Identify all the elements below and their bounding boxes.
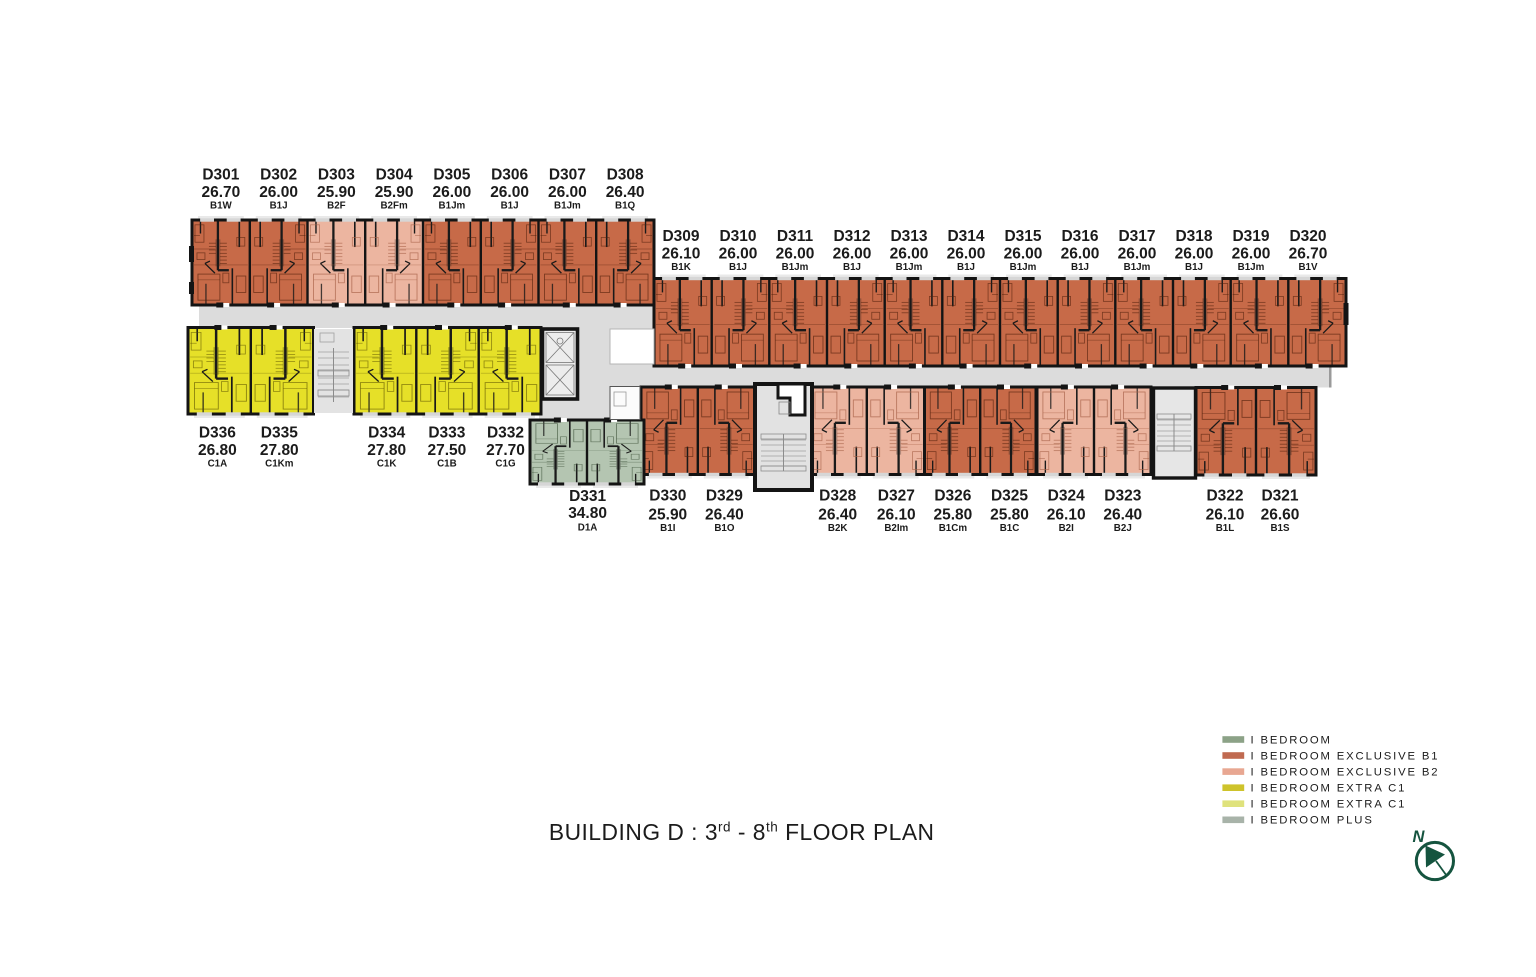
- svg-text:B1Q: B1Q: [615, 201, 636, 212]
- svg-text:D331: D331: [569, 488, 606, 505]
- svg-text:B2I: B2I: [1059, 523, 1075, 534]
- svg-text:D324: D324: [1048, 488, 1085, 505]
- svg-text:D310: D310: [719, 228, 756, 245]
- svg-text:25.90: 25.90: [648, 507, 687, 524]
- svg-text:26.80: 26.80: [198, 442, 237, 459]
- svg-text:26.40: 26.40: [818, 507, 857, 524]
- svg-text:27.80: 27.80: [367, 442, 406, 459]
- svg-text:D322: D322: [1206, 488, 1243, 505]
- svg-text:D317: D317: [1118, 228, 1155, 245]
- svg-text:26.00: 26.00: [719, 246, 758, 263]
- svg-text:B1Jm: B1Jm: [896, 262, 923, 273]
- svg-text:C1B: C1B: [437, 459, 457, 470]
- svg-text:N: N: [1413, 828, 1426, 846]
- svg-text:26.00: 26.00: [947, 246, 986, 263]
- svg-text:26.10: 26.10: [1047, 507, 1086, 524]
- svg-text:B1Jm: B1Jm: [782, 262, 809, 273]
- svg-text:D333: D333: [428, 425, 465, 442]
- svg-text:C1Km: C1Km: [265, 459, 294, 470]
- svg-text:C1A: C1A: [208, 459, 228, 470]
- svg-text:26.60: 26.60: [1261, 507, 1300, 524]
- svg-text:I BEDROOM PLUS: I BEDROOM PLUS: [1251, 815, 1374, 827]
- svg-text:D329: D329: [706, 488, 743, 505]
- svg-text:25.80: 25.80: [934, 507, 973, 524]
- svg-text:B1I: B1I: [660, 523, 676, 534]
- svg-text:I BEDROOM EXCLUSIVE B2: I BEDROOM EXCLUSIVE B2: [1251, 767, 1440, 779]
- svg-text:D314: D314: [947, 228, 984, 245]
- svg-text:B2F: B2F: [327, 201, 346, 212]
- svg-text:B1L: B1L: [1216, 523, 1235, 534]
- svg-text:B1W: B1W: [210, 201, 233, 212]
- svg-text:I BEDROOM: I BEDROOM: [1251, 734, 1332, 746]
- svg-text:D307: D307: [549, 167, 586, 184]
- svg-text:D321: D321: [1261, 488, 1298, 505]
- svg-text:26.00: 26.00: [1061, 246, 1100, 263]
- svg-text:B1J: B1J: [270, 201, 288, 212]
- svg-text:D332: D332: [487, 425, 524, 442]
- svg-text:26.00: 26.00: [1175, 246, 1214, 263]
- svg-text:B1C: B1C: [1000, 523, 1020, 534]
- svg-text:D325: D325: [991, 488, 1028, 505]
- svg-text:26.70: 26.70: [202, 184, 241, 201]
- svg-text:B1V: B1V: [1298, 262, 1318, 273]
- svg-text:I BEDROOM EXCLUSIVE B1: I BEDROOM EXCLUSIVE B1: [1251, 750, 1440, 762]
- svg-text:D328: D328: [819, 488, 856, 505]
- svg-text:D318: D318: [1175, 228, 1212, 245]
- svg-text:B2Im: B2Im: [884, 523, 908, 534]
- svg-text:26.70: 26.70: [1289, 246, 1328, 263]
- svg-text:B1J: B1J: [957, 262, 975, 273]
- svg-text:26.00: 26.00: [1004, 246, 1043, 263]
- svg-text:C1G: C1G: [495, 459, 516, 470]
- svg-text:26.10: 26.10: [877, 507, 916, 524]
- svg-text:26.10: 26.10: [662, 246, 701, 263]
- svg-text:D301: D301: [202, 167, 239, 184]
- svg-text:D316: D316: [1061, 228, 1098, 245]
- svg-text:26.00: 26.00: [776, 246, 815, 263]
- svg-text:D319: D319: [1232, 228, 1269, 245]
- svg-text:D302: D302: [260, 167, 297, 184]
- svg-text:D306: D306: [491, 167, 528, 184]
- svg-text:26.00: 26.00: [890, 246, 929, 263]
- svg-text:BUILDING D : 3rd - 8th FLOOR P: BUILDING D : 3rd - 8th FLOOR PLAN: [549, 819, 935, 845]
- svg-text:D303: D303: [318, 167, 355, 184]
- svg-text:D327: D327: [878, 488, 915, 505]
- svg-text:25.90: 25.90: [317, 184, 356, 201]
- svg-text:26.40: 26.40: [1103, 507, 1142, 524]
- svg-text:27.80: 27.80: [260, 442, 299, 459]
- svg-text:B2J: B2J: [1114, 523, 1132, 534]
- svg-text:D305: D305: [433, 167, 470, 184]
- svg-text:D334: D334: [368, 425, 405, 442]
- svg-text:26.00: 26.00: [1118, 246, 1157, 263]
- svg-text:B1Jm: B1Jm: [1124, 262, 1151, 273]
- svg-text:D308: D308: [607, 167, 644, 184]
- svg-text:25.90: 25.90: [375, 184, 414, 201]
- svg-text:D320: D320: [1289, 228, 1326, 245]
- svg-text:27.70: 27.70: [486, 442, 525, 459]
- svg-text:B1Cm: B1Cm: [939, 523, 968, 534]
- svg-text:26.00: 26.00: [433, 184, 472, 201]
- svg-text:B1Jm: B1Jm: [554, 201, 581, 212]
- svg-text:26.10: 26.10: [1206, 507, 1245, 524]
- svg-text:B2Fm: B2Fm: [380, 201, 408, 212]
- svg-text:B1Jm: B1Jm: [439, 201, 466, 212]
- svg-text:B2K: B2K: [828, 523, 848, 534]
- svg-text:D312: D312: [833, 228, 870, 245]
- svg-text:27.50: 27.50: [428, 442, 467, 459]
- svg-text:I BEDROOM EXTRA C1: I BEDROOM EXTRA C1: [1251, 799, 1407, 811]
- svg-text:D313: D313: [890, 228, 927, 245]
- svg-text:D330: D330: [649, 488, 686, 505]
- svg-text:D335: D335: [261, 425, 298, 442]
- svg-text:B1O: B1O: [714, 523, 735, 534]
- svg-text:D336: D336: [199, 425, 236, 442]
- svg-text:26.00: 26.00: [259, 184, 298, 201]
- svg-text:B1J: B1J: [729, 262, 747, 273]
- svg-text:B1Jm: B1Jm: [1010, 262, 1037, 273]
- svg-text:26.00: 26.00: [490, 184, 529, 201]
- svg-text:B1J: B1J: [843, 262, 861, 273]
- svg-text:D323: D323: [1104, 488, 1141, 505]
- svg-text:D309: D309: [662, 228, 699, 245]
- svg-text:B1J: B1J: [1071, 262, 1089, 273]
- svg-text:B1S: B1S: [1270, 523, 1290, 534]
- svg-text:26.40: 26.40: [606, 184, 645, 201]
- svg-text:34.80: 34.80: [568, 505, 607, 522]
- svg-text:C1K: C1K: [377, 459, 397, 470]
- svg-text:26.00: 26.00: [1232, 246, 1271, 263]
- svg-text:D1A: D1A: [578, 523, 598, 534]
- svg-text:B1J: B1J: [1185, 262, 1203, 273]
- svg-text:D304: D304: [376, 167, 413, 184]
- svg-text:26.40: 26.40: [705, 507, 744, 524]
- svg-text:26.00: 26.00: [833, 246, 872, 263]
- svg-text:D315: D315: [1004, 228, 1041, 245]
- svg-text:25.80: 25.80: [990, 507, 1029, 524]
- svg-text:I BEDROOM EXTRA C1: I BEDROOM EXTRA C1: [1251, 783, 1407, 795]
- svg-text:B1K: B1K: [671, 262, 691, 273]
- svg-text:B1Jm: B1Jm: [1238, 262, 1265, 273]
- svg-text:B1J: B1J: [501, 201, 519, 212]
- svg-text:D311: D311: [777, 228, 814, 245]
- svg-text:D326: D326: [934, 488, 971, 505]
- svg-text:26.00: 26.00: [548, 184, 587, 201]
